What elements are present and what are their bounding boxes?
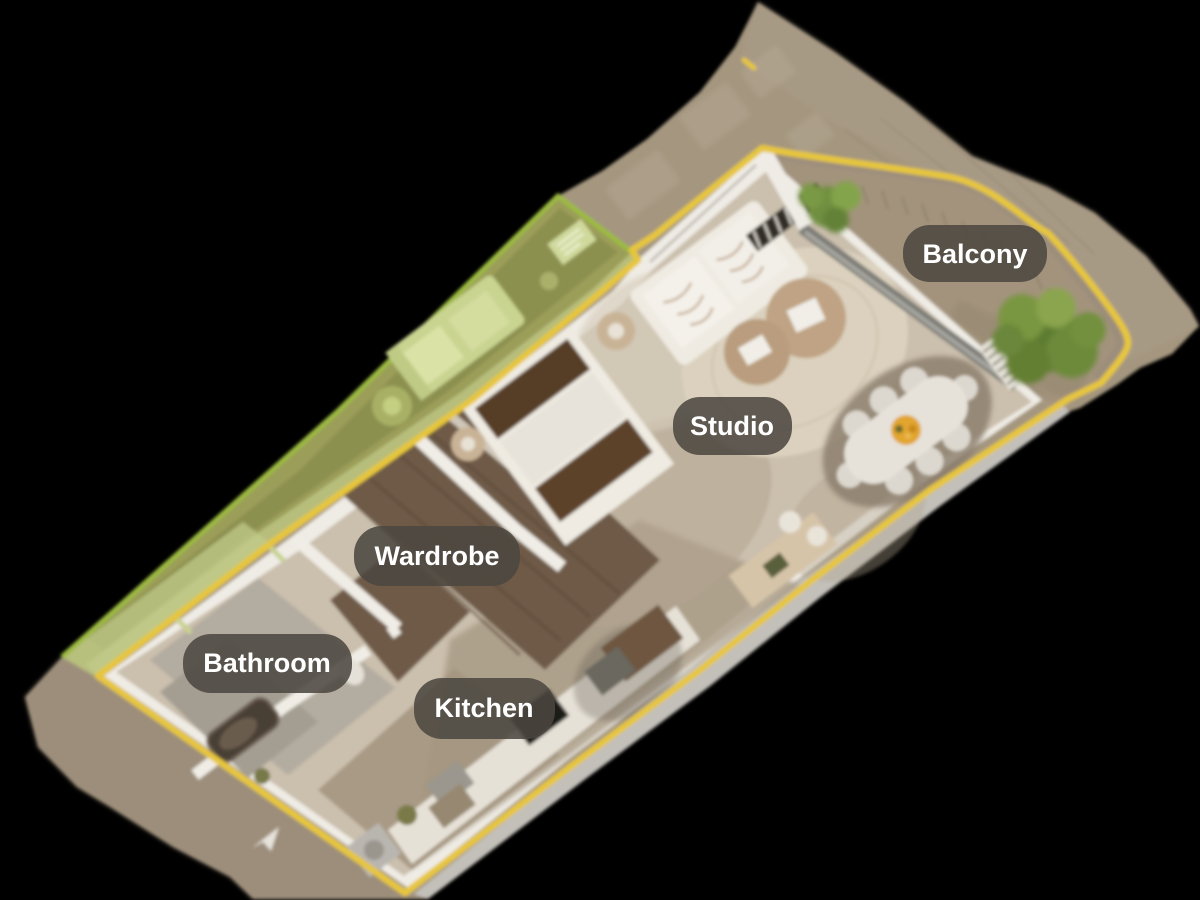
svg-text:Wardrobe: Wardrobe — [374, 541, 499, 571]
svg-text:Bathroom: Bathroom — [203, 648, 331, 678]
svg-text:Kitchen: Kitchen — [434, 693, 533, 723]
svg-text:Balcony: Balcony — [922, 239, 1027, 269]
svg-text:Studio: Studio — [690, 411, 774, 441]
